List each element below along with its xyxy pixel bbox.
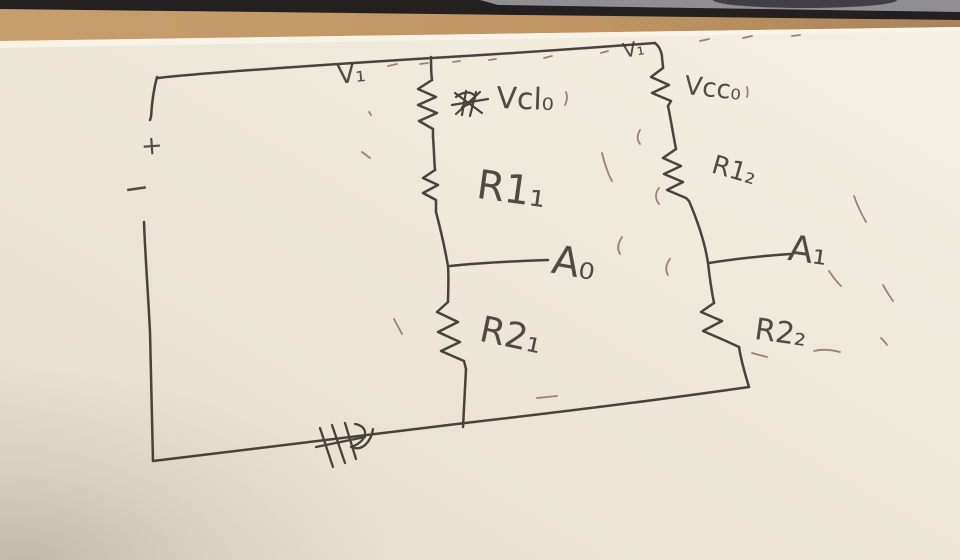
- label-r2-2: R2₂: [753, 315, 809, 352]
- paper-corner-shadow: [0, 300, 500, 560]
- voltage-source-minus: −: [122, 173, 151, 206]
- wire-branch1-stub: [431, 57, 432, 80]
- label-vcc0: Vcc₀: [683, 73, 742, 105]
- photo-of-circuit-sketch: + − V₁ Vcl₀ R1₁ A₀ R2₁ V₁ Vcc₀ R1₂ A₁ R2…: [0, 0, 960, 560]
- label-vcl0: Vcl₀: [496, 84, 554, 116]
- label-a1: A₁: [786, 231, 830, 272]
- voltage-source-plus: +: [140, 132, 164, 159]
- stray-mark: [489, 59, 496, 60]
- label-v1-right: V₁: [621, 37, 646, 60]
- stray-mark: [747, 87, 748, 97]
- label-r1-1: R1₁: [474, 165, 548, 214]
- stray-mark: [792, 35, 800, 36]
- label-a0: A₀: [549, 240, 599, 287]
- circuit-sketch-svg: [0, 0, 960, 560]
- label-v1-left: V₁: [336, 60, 367, 89]
- stray-mark: [453, 61, 460, 62]
- stray-mark: [420, 63, 428, 64]
